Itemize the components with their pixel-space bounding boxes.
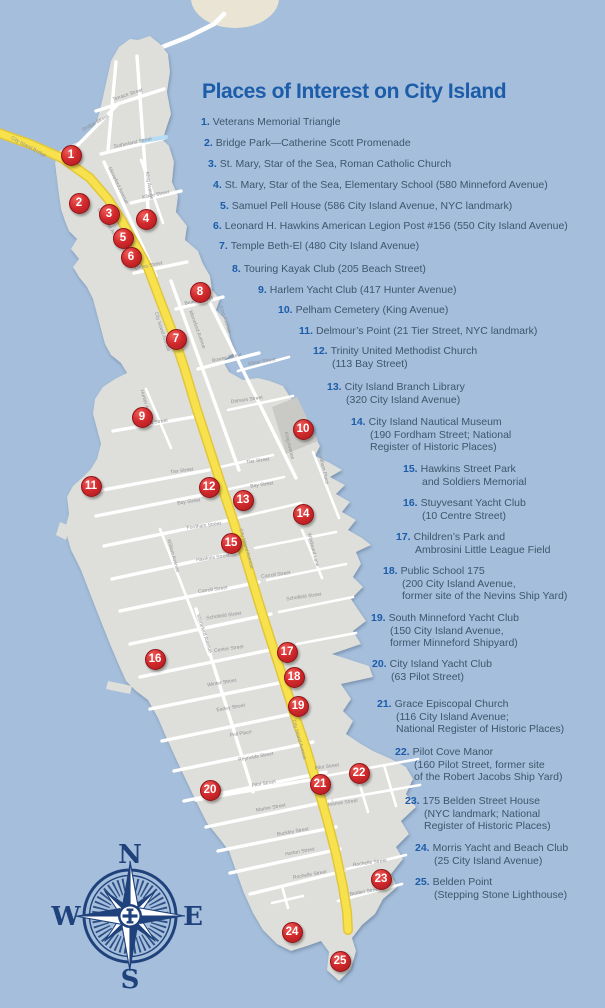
marker-number: 20	[204, 784, 217, 796]
poi-text: Temple Beth-El (480 City Island Avenue)	[231, 240, 419, 252]
poi-text: of the Robert Jacobs Ship Yard)	[414, 771, 562, 784]
marker-number: 21	[314, 778, 327, 790]
poi-text: (116 City Island Avenue;	[396, 711, 564, 724]
marker-number: 2	[76, 197, 82, 209]
compass-n-label: N	[118, 840, 142, 870]
map-marker-3[interactable]: 3	[99, 204, 120, 225]
poi-item-10: 10.Pelham Cemetery (King Avenue)	[278, 304, 448, 317]
poi-item-12: 12.Trinity United Methodist Church(113 B…	[313, 345, 477, 370]
poi-item-14: 14.City Island Nautical Museum(190 Fordh…	[351, 416, 511, 454]
poi-text: Touring Kayak Club (205 Beach Street)	[244, 263, 426, 275]
map-marker-11[interactable]: 11	[81, 476, 102, 497]
poi-text: Harlem Yacht Club (417 Hunter Avenue)	[270, 284, 457, 296]
map-marker-20[interactable]: 20	[200, 780, 221, 801]
poi-text: former Minneford Shipyard)	[390, 637, 519, 650]
map-marker-12[interactable]: 12	[199, 477, 220, 498]
marker-number: 9	[139, 411, 145, 423]
poi-text: 175 Belden Street House	[423, 795, 540, 807]
poi-text: Public School 175	[401, 565, 485, 577]
poi-text: St. Mary, Star of the Sea, Roman Catholi…	[220, 158, 452, 170]
poi-text: (113 Bay Street)	[332, 358, 477, 371]
poi-text: Delmour’s Point (21 Tier Street, NYC lan…	[316, 325, 537, 337]
poi-text: (190 Fordham Street; National	[370, 429, 511, 442]
poi-number: 16.	[403, 497, 418, 509]
map-marker-9[interactable]: 9	[132, 407, 153, 428]
marker-number: 5	[120, 232, 126, 244]
map-marker-19[interactable]: 19	[288, 696, 309, 717]
marker-number: 24	[286, 926, 299, 938]
poi-item-25: 25.Belden Point(Stepping Stone Lighthous…	[415, 876, 567, 901]
poi-item-6: 6.Leonard H. Hawkins American Legion Pos…	[213, 220, 568, 233]
poi-text: and Soldiers Memorial	[422, 476, 526, 489]
poi-text: Hawkins Street Park	[421, 463, 516, 475]
poi-number: 7.	[219, 240, 228, 252]
map-marker-18[interactable]: 18	[284, 667, 305, 688]
map-marker-6[interactable]: 6	[121, 247, 142, 268]
poi-number: 12.	[313, 345, 328, 357]
marker-number: 23	[375, 873, 388, 885]
poi-text: Children’s Park and	[414, 531, 505, 543]
poi-text: Ambrosini Little League Field	[415, 544, 550, 557]
city-island-landmass	[55, 36, 416, 981]
compass-e-label: E	[183, 902, 203, 932]
poi-text: City Island Branch Library	[345, 381, 465, 393]
poi-item-17: 17.Children’s Park andAmbrosini Little L…	[396, 531, 550, 556]
poi-number: 11.	[299, 325, 313, 337]
poi-text: Pilot Cove Manor	[413, 746, 494, 758]
map-marker-4[interactable]: 4	[136, 209, 157, 230]
poi-item-24: 24.Morris Yacht and Beach Club(25 City I…	[415, 842, 568, 867]
marker-number: 1	[68, 149, 74, 161]
marker-number: 7	[173, 333, 179, 345]
poi-number: 6.	[213, 220, 222, 232]
marker-number: 12	[203, 481, 216, 493]
poi-number: 22.	[395, 746, 410, 758]
poi-number: 10.	[278, 304, 293, 316]
poi-item-13: 13.City Island Branch Library(320 City I…	[327, 381, 465, 406]
poi-number: 9.	[258, 284, 267, 296]
poi-text: St. Mary, Star of the Sea, Elementary Sc…	[225, 179, 548, 191]
map-marker-16[interactable]: 16	[145, 649, 166, 670]
poi-number: 19.	[371, 612, 386, 624]
poi-number: 2.	[204, 137, 213, 149]
poi-number: 20.	[372, 658, 387, 670]
map-marker-8[interactable]: 8	[190, 282, 211, 303]
poi-number: 13.	[327, 381, 342, 393]
map-marker-24[interactable]: 24	[282, 922, 303, 943]
poi-text: (10 Centre Street)	[422, 510, 526, 523]
compass-rose: N E S W	[50, 840, 203, 995]
poi-text: former site of the Nevins Ship Yard)	[402, 590, 567, 603]
poi-text: Morris Yacht and Beach Club	[433, 842, 569, 854]
poi-number: 25.	[415, 876, 430, 888]
poi-text: (63 Pilot Street)	[391, 671, 492, 684]
poi-text: City Island Yacht Club	[390, 658, 492, 670]
poi-text: Pelham Cemetery (King Avenue)	[296, 304, 449, 316]
poi-item-2: 2.Bridge Park—Catherine Scott Promenade	[204, 137, 411, 150]
map-marker-13[interactable]: 13	[233, 490, 254, 511]
poi-text: Grace Episcopal Church	[395, 698, 509, 710]
poi-number: 3.	[208, 158, 217, 170]
poi-text: Register of Historic Places)	[370, 441, 511, 454]
marker-number: 6	[128, 251, 134, 263]
poi-item-22: 22.Pilot Cove Manor(160 Pilot Street, fo…	[395, 746, 562, 784]
poi-number: 18.	[383, 565, 398, 577]
high-island	[191, 0, 279, 28]
poi-number: 14.	[351, 416, 366, 428]
poi-item-8: 8.Touring Kayak Club (205 Beach Street)	[232, 263, 426, 276]
poi-text: South Minneford Yacht Club	[389, 612, 519, 624]
map-marker-14[interactable]: 14	[293, 504, 314, 525]
poi-item-16: 16.Stuyvesant Yacht Club(10 Centre Stree…	[403, 497, 526, 522]
poi-number: 21.	[377, 698, 392, 710]
poi-text: (150 City Island Avenue,	[390, 625, 519, 638]
map-marker-1[interactable]: 1	[61, 145, 82, 166]
poi-item-23: 23.175 Belden Street House(NYC landmark;…	[405, 795, 551, 833]
map-marker-21[interactable]: 21	[310, 774, 331, 795]
poi-item-4: 4.St. Mary, Star of the Sea, Elementary …	[213, 179, 548, 192]
marker-number: 17	[281, 646, 294, 658]
poi-item-5: 5.Samuel Pell House (586 City Island Ave…	[220, 200, 512, 213]
poi-text: Register of Historic Places)	[424, 820, 551, 833]
poi-text: City Island Nautical Museum	[369, 416, 502, 428]
poi-text: (200 City Island Avenue,	[402, 578, 567, 591]
compass-s-label: S	[121, 965, 140, 995]
map-marker-10[interactable]: 10	[293, 419, 314, 440]
poi-number: 17.	[396, 531, 411, 543]
poi-number: 4.	[213, 179, 222, 191]
marker-number: 16	[149, 653, 162, 665]
map-marker-17[interactable]: 17	[277, 642, 298, 663]
poi-item-11: 11.Delmour’s Point (21 Tier Street, NYC …	[299, 325, 537, 338]
poi-item-1: 1.Veterans Memorial Triangle	[201, 116, 341, 129]
poi-item-19: 19.South Minneford Yacht Club(150 City I…	[371, 612, 519, 650]
poi-item-7: 7.Temple Beth-El (480 City Island Avenue…	[219, 240, 419, 253]
poi-text: National Register of Historic Places)	[396, 723, 564, 736]
poi-number: 15.	[403, 463, 418, 475]
map-marker-2[interactable]: 2	[69, 193, 90, 214]
city-island-map: Terrace StreetBridge StreetSutherland St…	[0, 0, 605, 1008]
map-marker-25[interactable]: 25	[330, 951, 351, 972]
poi-text: (NYC landmark; National	[424, 808, 551, 821]
page-title: Places of Interest on City Island	[202, 80, 582, 104]
marker-number: 18	[288, 671, 301, 683]
poi-text: Trinity United Methodist Church	[331, 345, 478, 357]
poi-text: Bridge Park—Catherine Scott Promenade	[216, 137, 411, 149]
poi-text: Belden Point	[433, 876, 493, 888]
poi-text: (Stepping Stone Lighthouse)	[434, 889, 567, 902]
poi-number: 1.	[201, 116, 210, 128]
poi-item-9: 9.Harlem Yacht Club (417 Hunter Avenue)	[258, 284, 457, 297]
poi-number: 23.	[405, 795, 420, 807]
map-marker-23[interactable]: 23	[371, 869, 392, 890]
poi-text: (25 City Island Avenue)	[434, 855, 568, 868]
marker-number: 13	[237, 494, 250, 506]
poi-number: 8.	[232, 263, 241, 275]
poi-item-18: 18.Public School 175(200 City Island Ave…	[383, 565, 567, 603]
poi-text: (320 City Island Avenue)	[346, 394, 465, 407]
street-label: Kilroe Street	[248, 357, 277, 368]
poi-number: 5.	[220, 200, 229, 212]
poi-item-3: 3.St. Mary, Star of the Sea, Roman Catho…	[208, 158, 451, 171]
poi-item-20: 20.City Island Yacht Club(63 Pilot Stree…	[372, 658, 492, 683]
marker-number: 22	[353, 767, 366, 779]
poi-text: Veterans Memorial Triangle	[213, 116, 341, 128]
map-marker-5[interactable]: 5	[113, 228, 134, 249]
marker-number: 15	[225, 537, 238, 549]
poi-text: (160 Pilot Street, former site	[414, 759, 562, 772]
poi-item-15: 15.Hawkins Street Parkand Soldiers Memor…	[403, 463, 526, 488]
poi-text: Leonard H. Hawkins American Legion Post …	[225, 220, 568, 232]
marker-number: 10	[297, 423, 310, 435]
compass-w-label: W	[50, 902, 81, 932]
poi-text: Samuel Pell House (586 City Island Avenu…	[232, 200, 513, 212]
poi-number: 24.	[415, 842, 430, 854]
marker-number: 11	[85, 480, 97, 492]
map-marker-22[interactable]: 22	[349, 763, 370, 784]
poi-item-21: 21.Grace Episcopal Church(116 City Islan…	[377, 698, 564, 736]
marker-number: 19	[292, 700, 305, 712]
marker-number: 8	[197, 286, 203, 298]
map-marker-7[interactable]: 7	[166, 329, 187, 350]
poi-text: Stuyvesant Yacht Club	[421, 497, 526, 509]
marker-number: 3	[106, 208, 112, 220]
marker-number: 25	[334, 955, 347, 967]
marker-number: 4	[143, 213, 149, 225]
map-marker-15[interactable]: 15	[221, 533, 242, 554]
marker-number: 14	[297, 508, 310, 520]
